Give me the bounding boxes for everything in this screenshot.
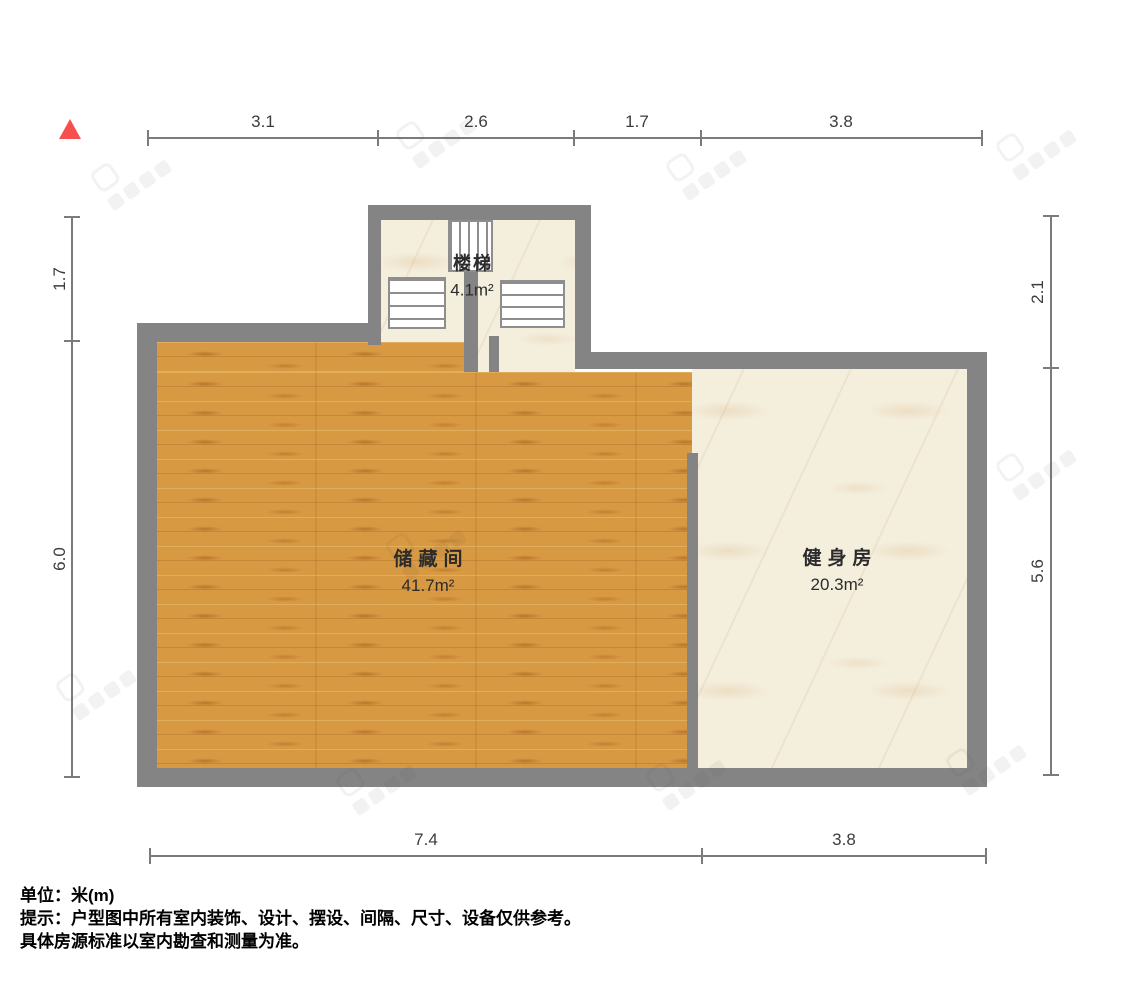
watermark-tile (664, 124, 748, 202)
dim-line (150, 855, 986, 857)
stair-flight-left (388, 277, 446, 329)
dim-tick (1043, 774, 1059, 776)
dim-tick (147, 130, 149, 146)
dim-tick (149, 848, 151, 864)
watermark-tile (994, 424, 1078, 502)
dim-line (148, 137, 982, 139)
dim-tick (64, 216, 80, 218)
north-arrow-icon (59, 119, 81, 139)
room-name: 健身房 (796, 543, 877, 570)
dim-tick (573, 130, 575, 146)
footer-notes: 单位：米(m) 提示：户型图中所有室内装饰、设计、摆设、间隔、尺寸、设备仅供参考… (20, 884, 581, 953)
room-area: 41.7m² (387, 576, 468, 596)
dim-tick (1043, 367, 1059, 369)
room-name: 储藏间 (387, 544, 468, 571)
floor-plan-canvas: 3.1 2.6 1.7 3.8 7.4 3.8 1.7 6.0 2.1 5.6 (0, 0, 1125, 992)
wall-stair-right (575, 205, 591, 369)
dim-tick (985, 848, 987, 864)
wall-top-left (137, 323, 381, 342)
dim-tick (981, 130, 983, 146)
watermark-tile (994, 104, 1078, 182)
dim-tick (1043, 215, 1059, 217)
dim-label: 1.7 (50, 267, 70, 291)
wall-right (967, 352, 987, 787)
watermark-tile (54, 644, 138, 722)
dim-label: 6.0 (50, 547, 70, 571)
dim-line (71, 217, 73, 777)
dim-tick (701, 848, 703, 864)
storage-room-floor-upper (157, 342, 464, 373)
room-label-stairs: 楼梯 4.1m² (450, 250, 493, 301)
dim-tick (377, 130, 379, 146)
room-area: 20.3m² (796, 575, 877, 595)
wall-landing-stub (489, 336, 499, 372)
wall-bottom (137, 768, 987, 787)
dim-line (1050, 216, 1052, 775)
room-name: 楼梯 (450, 250, 493, 276)
dim-label: 5.6 (1028, 559, 1048, 583)
dim-tick (700, 130, 702, 146)
wall-room-divider (687, 453, 698, 768)
room-area: 4.1m² (450, 281, 493, 301)
dim-label: 3.8 (829, 112, 853, 132)
wall-left (137, 323, 157, 787)
dim-label: 2.1 (1028, 280, 1048, 304)
room-label-storage: 储藏间 41.7m² (387, 544, 468, 596)
dim-tick (64, 340, 80, 342)
dim-tick (64, 776, 80, 778)
unit-note: 单位：米(m) (20, 884, 581, 907)
dim-label: 2.6 (464, 112, 488, 132)
tip-note-line2: 具体房源标准以室内勘查和测量为准。 (20, 930, 581, 953)
dim-label: 3.8 (832, 830, 856, 850)
stair-flight-right (500, 280, 565, 328)
wall-gym-top (575, 352, 987, 369)
tip-note-line1: 提示：户型图中所有室内装饰、设计、摆设、间隔、尺寸、设备仅供参考。 (20, 907, 581, 930)
dim-label: 7.4 (414, 830, 438, 850)
watermark-tile (89, 134, 173, 212)
room-label-gym: 健身房 20.3m² (796, 543, 877, 595)
dim-label: 1.7 (625, 112, 649, 132)
dim-label: 3.1 (251, 112, 275, 132)
wall-stair-top (368, 205, 591, 220)
